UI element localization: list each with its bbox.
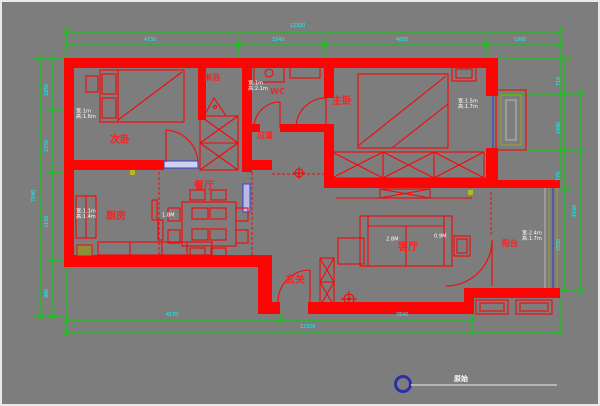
window-spec: 宽:2.4m高:1.7m bbox=[522, 230, 542, 242]
dim-right-seg: 770 bbox=[557, 172, 562, 181]
drawing-title-line bbox=[411, 384, 557, 386]
window-spec: 宽:1m高:2.1m bbox=[248, 80, 268, 92]
room-label-corridor: 过道 bbox=[257, 132, 273, 140]
dim-bottom-seg: 4170 bbox=[166, 313, 178, 318]
window-spec: 宽:1.1m高:1.4m bbox=[76, 208, 96, 220]
dim-bottom-seg: 7840 bbox=[396, 313, 408, 318]
door-width-label: 2.8M bbox=[386, 237, 399, 242]
door-width-label: 1.8M bbox=[162, 213, 175, 218]
room-label-secondary-bedroom: 次卧 bbox=[110, 136, 130, 146]
walls-layer bbox=[64, 58, 560, 314]
room-label-master-bedroom: 主卧 bbox=[332, 97, 352, 107]
dim-top-total: 12320 bbox=[290, 24, 305, 29]
dim-right-seg: 2550 bbox=[557, 239, 562, 251]
dim-left-total: 7540 bbox=[32, 190, 37, 202]
door-width-label: 0.9M bbox=[434, 234, 447, 239]
dim-left-seg: 980 bbox=[45, 289, 50, 298]
dim-top-seg: 3340 bbox=[272, 38, 284, 43]
windows-layer bbox=[64, 58, 557, 288]
window-spec: 宽:1.5m高:1.7m bbox=[458, 98, 478, 110]
dim-top-seg: 4850 bbox=[396, 38, 408, 43]
dim-top-seg: 1900 bbox=[514, 38, 526, 43]
room-label-dining: 餐厅 bbox=[194, 182, 214, 192]
cad-floorplan-canvas[interactable]: 次卧 淋浴 WC 主卧 过道 餐厅 厨房 玄关 客厅 阳台 宽:1m高:1.6m… bbox=[0, 0, 600, 406]
room-label-balcony: 阳台 bbox=[502, 240, 518, 248]
room-label-entry: 玄关 bbox=[285, 276, 305, 286]
dim-right-total: 4160 bbox=[573, 205, 578, 217]
dim-left-seg: 2250 bbox=[45, 140, 50, 152]
room-label-kitchen: 厨房 bbox=[106, 212, 126, 222]
room-label-shower: 淋浴 bbox=[204, 74, 220, 82]
room-label-wc: WC bbox=[270, 88, 285, 96]
dim-right-seg: 710 bbox=[557, 77, 562, 86]
room-label-living: 客厅 bbox=[398, 243, 418, 253]
dim-left-seg: 3150 bbox=[45, 216, 50, 228]
dim-right-seg: 1480 bbox=[557, 122, 562, 134]
drawing-title-label: 原始 bbox=[454, 374, 468, 384]
window-spec: 宽:1m高:1.6m bbox=[76, 108, 96, 120]
floorplan-geometry bbox=[2, 2, 598, 404]
ceiling-lamp-icon bbox=[293, 167, 305, 179]
dim-top-seg: 4730 bbox=[144, 38, 156, 43]
drawing-mark-circle bbox=[394, 375, 412, 393]
dim-bottom-total: 12320 bbox=[300, 325, 315, 330]
dim-left-seg: 1850 bbox=[45, 84, 50, 96]
